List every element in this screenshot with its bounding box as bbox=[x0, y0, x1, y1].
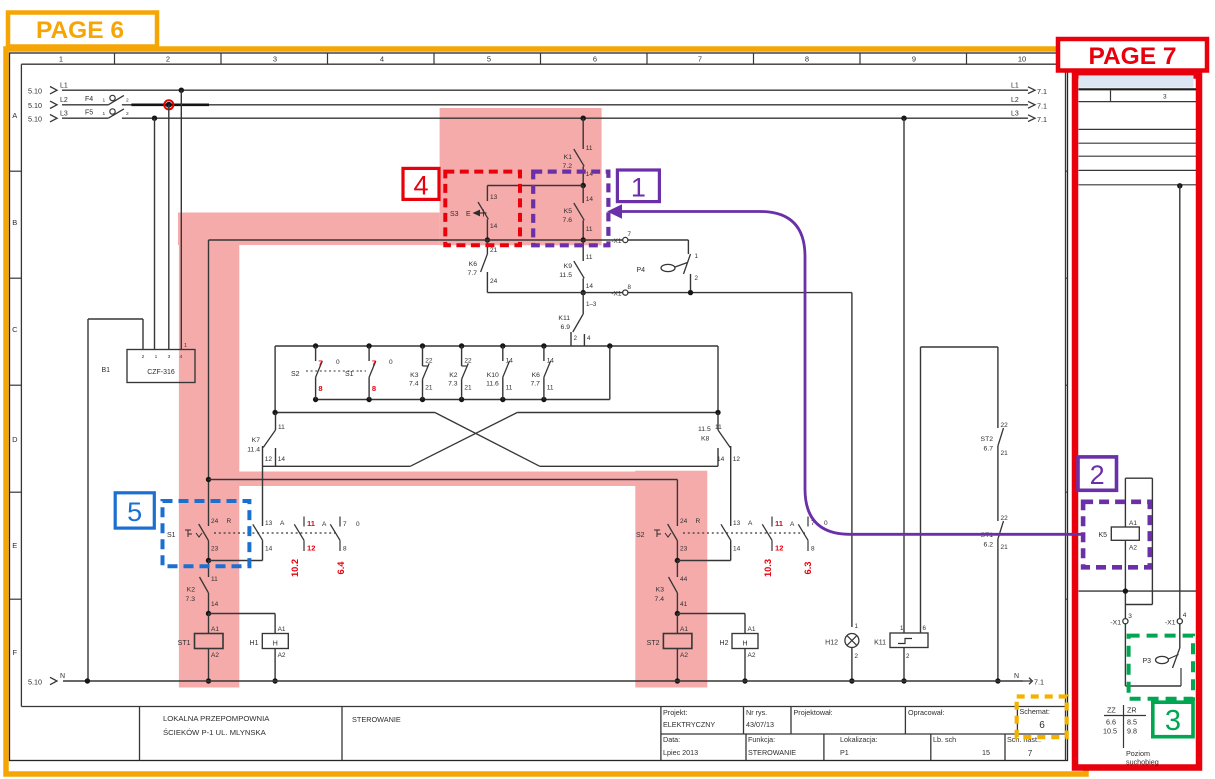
svg-text:K3: K3 bbox=[656, 587, 665, 594]
svg-text:13: 13 bbox=[265, 520, 273, 527]
svg-text:H1: H1 bbox=[250, 640, 259, 647]
svg-text:P3: P3 bbox=[1142, 658, 1151, 665]
svg-text:ST2: ST2 bbox=[647, 640, 660, 647]
svg-text:3: 3 bbox=[168, 354, 171, 360]
svg-text:2: 2 bbox=[126, 98, 129, 104]
svg-text:2: 2 bbox=[142, 354, 145, 360]
svg-text:8: 8 bbox=[811, 546, 815, 553]
svg-text:Nr rys.: Nr rys. bbox=[746, 708, 767, 717]
svg-text:21: 21 bbox=[1001, 450, 1009, 457]
svg-text:11: 11 bbox=[715, 424, 722, 431]
svg-text:K3: K3 bbox=[410, 372, 419, 379]
svg-text:Data:: Data: bbox=[663, 735, 680, 744]
svg-text:B1: B1 bbox=[101, 367, 110, 374]
svg-text:0: 0 bbox=[356, 521, 360, 528]
svg-text:F: F bbox=[13, 648, 18, 657]
svg-text:F5: F5 bbox=[85, 110, 93, 117]
svg-text:H: H bbox=[742, 641, 747, 648]
svg-text:A2: A2 bbox=[211, 652, 219, 659]
svg-text:7.6: 7.6 bbox=[563, 217, 573, 224]
svg-text:K11: K11 bbox=[874, 640, 886, 647]
svg-text:24: 24 bbox=[490, 278, 498, 285]
svg-text:21: 21 bbox=[490, 247, 498, 254]
svg-text:4: 4 bbox=[380, 55, 384, 64]
svg-text:7.7: 7.7 bbox=[468, 270, 478, 277]
svg-text:1: 1 bbox=[103, 98, 106, 104]
svg-text:N: N bbox=[60, 673, 65, 680]
svg-text:9: 9 bbox=[912, 55, 916, 64]
svg-text:A: A bbox=[790, 521, 795, 528]
svg-text:S2: S2 bbox=[291, 371, 300, 378]
svg-text:3: 3 bbox=[273, 55, 277, 64]
svg-text:1: 1 bbox=[103, 111, 106, 117]
svg-text:11: 11 bbox=[547, 385, 554, 392]
svg-text:1: 1 bbox=[59, 55, 63, 64]
svg-text:A1: A1 bbox=[278, 626, 286, 633]
svg-text:5.10: 5.10 bbox=[28, 87, 42, 96]
svg-text:K2: K2 bbox=[449, 372, 458, 379]
svg-text:R: R bbox=[227, 518, 232, 525]
svg-text:K2: K2 bbox=[187, 587, 196, 594]
svg-text:A: A bbox=[748, 520, 753, 527]
svg-text:H12: H12 bbox=[825, 640, 838, 647]
svg-text:7: 7 bbox=[1028, 749, 1032, 758]
svg-text:43/07/13: 43/07/13 bbox=[746, 720, 774, 729]
svg-text:6.3: 6.3 bbox=[803, 562, 813, 575]
svg-text:H: H bbox=[273, 641, 278, 648]
svg-text:14: 14 bbox=[265, 546, 273, 553]
svg-text:1–3: 1–3 bbox=[586, 301, 597, 308]
svg-text:K9: K9 bbox=[564, 263, 573, 270]
svg-text:21: 21 bbox=[464, 385, 472, 392]
svg-text:5: 5 bbox=[127, 497, 142, 527]
svg-text:7: 7 bbox=[628, 231, 632, 238]
svg-text:A: A bbox=[12, 111, 17, 120]
svg-text:4: 4 bbox=[1183, 612, 1187, 619]
svg-text:N: N bbox=[1014, 673, 1019, 680]
svg-text:A2: A2 bbox=[680, 652, 688, 659]
svg-text:11: 11 bbox=[211, 576, 218, 583]
svg-text:7.4: 7.4 bbox=[655, 596, 665, 603]
svg-text:3: 3 bbox=[1165, 705, 1181, 737]
svg-text:7.2: 7.2 bbox=[563, 163, 573, 170]
svg-text:11.5: 11.5 bbox=[698, 426, 711, 433]
svg-text:11.6: 11.6 bbox=[486, 381, 499, 388]
svg-text:5.10: 5.10 bbox=[28, 115, 42, 124]
svg-text:11: 11 bbox=[506, 385, 513, 392]
svg-text:1: 1 bbox=[155, 354, 158, 360]
svg-text:S3: S3 bbox=[450, 211, 459, 218]
svg-text:1: 1 bbox=[184, 343, 187, 349]
svg-text:CZF-316: CZF-316 bbox=[147, 369, 175, 376]
svg-text:S2: S2 bbox=[636, 532, 645, 539]
svg-text:A1: A1 bbox=[748, 626, 756, 633]
svg-text:21: 21 bbox=[1001, 544, 1009, 551]
svg-text:10: 10 bbox=[1018, 55, 1026, 64]
svg-text:A2: A2 bbox=[1129, 545, 1137, 552]
svg-text:14: 14 bbox=[211, 601, 219, 608]
svg-text:P4: P4 bbox=[636, 267, 645, 274]
svg-text:A2: A2 bbox=[278, 652, 286, 659]
svg-text:5.10: 5.10 bbox=[28, 101, 42, 110]
svg-text:10.3: 10.3 bbox=[763, 559, 773, 577]
svg-text:Projekt:: Projekt: bbox=[663, 708, 687, 717]
svg-text:14: 14 bbox=[490, 223, 498, 230]
svg-text:6: 6 bbox=[1039, 720, 1045, 731]
svg-text:14: 14 bbox=[547, 358, 555, 365]
svg-text:7.1: 7.1 bbox=[1037, 102, 1047, 111]
svg-text:7: 7 bbox=[698, 55, 702, 64]
svg-text:2: 2 bbox=[1090, 460, 1105, 490]
svg-text:6: 6 bbox=[923, 625, 927, 632]
svg-text:Lpiec 2013: Lpiec 2013 bbox=[663, 748, 698, 757]
svg-text:14: 14 bbox=[586, 196, 594, 203]
svg-text:7.7: 7.7 bbox=[530, 381, 540, 388]
svg-text:S1: S1 bbox=[345, 371, 354, 378]
svg-text:6.4: 6.4 bbox=[336, 561, 346, 575]
svg-text:Lokalizacja:: Lokalizacja: bbox=[840, 735, 878, 744]
svg-text:-X1: -X1 bbox=[1110, 620, 1121, 627]
svg-text:Funkcja:: Funkcja: bbox=[748, 735, 775, 744]
svg-text:6.7: 6.7 bbox=[984, 446, 994, 453]
svg-text:14: 14 bbox=[717, 456, 725, 463]
svg-text:L3: L3 bbox=[1011, 111, 1019, 118]
svg-text:E: E bbox=[12, 541, 17, 550]
svg-text:STEROWANIE: STEROWANIE bbox=[352, 715, 401, 724]
svg-text:7: 7 bbox=[343, 521, 347, 528]
svg-text:1: 1 bbox=[631, 173, 646, 203]
svg-text:8: 8 bbox=[343, 546, 347, 553]
svg-text:Opracował:: Opracował: bbox=[908, 708, 944, 717]
svg-text:23: 23 bbox=[211, 546, 219, 553]
svg-text:1: 1 bbox=[855, 623, 859, 630]
svg-text:2: 2 bbox=[695, 275, 699, 282]
svg-text:ST1: ST1 bbox=[178, 640, 191, 647]
svg-text:B: B bbox=[12, 218, 17, 227]
svg-text:P1: P1 bbox=[840, 748, 849, 757]
svg-text:23: 23 bbox=[680, 546, 688, 553]
svg-text:24: 24 bbox=[680, 518, 688, 525]
svg-text:Projektował:: Projektował: bbox=[794, 708, 833, 717]
svg-text:14: 14 bbox=[586, 283, 594, 290]
svg-text:2: 2 bbox=[855, 653, 859, 660]
svg-text:7.3: 7.3 bbox=[448, 381, 458, 388]
svg-text:2: 2 bbox=[126, 111, 129, 117]
svg-text:K6: K6 bbox=[532, 372, 541, 379]
svg-text:11: 11 bbox=[307, 519, 316, 528]
svg-text:12: 12 bbox=[265, 456, 273, 463]
svg-text:6.2: 6.2 bbox=[984, 542, 994, 549]
svg-text:ELEKTRYCZNY: ELEKTRYCZNY bbox=[663, 720, 715, 729]
svg-text:5.10: 5.10 bbox=[28, 678, 42, 687]
svg-text:14: 14 bbox=[733, 546, 741, 553]
svg-text:A1: A1 bbox=[1129, 520, 1137, 527]
svg-text:8: 8 bbox=[372, 384, 376, 393]
svg-text:2: 2 bbox=[906, 653, 910, 660]
svg-text:A2: A2 bbox=[748, 652, 756, 659]
svg-text:11: 11 bbox=[586, 226, 593, 233]
svg-text:PAGE 6: PAGE 6 bbox=[36, 17, 124, 44]
svg-text:L2: L2 bbox=[60, 97, 68, 104]
svg-text:5: 5 bbox=[487, 55, 491, 64]
svg-text:R: R bbox=[696, 518, 701, 525]
svg-text:12: 12 bbox=[733, 456, 741, 463]
svg-text:7.4: 7.4 bbox=[409, 381, 419, 388]
svg-text:13: 13 bbox=[733, 520, 741, 527]
svg-text:L3: L3 bbox=[60, 111, 68, 118]
svg-text:6.9: 6.9 bbox=[561, 324, 571, 331]
svg-text:1: 1 bbox=[695, 253, 699, 260]
svg-text:24: 24 bbox=[211, 518, 219, 525]
svg-text:K7: K7 bbox=[252, 437, 261, 444]
svg-text:A: A bbox=[280, 520, 285, 527]
svg-text:21: 21 bbox=[425, 385, 433, 392]
svg-text:L1: L1 bbox=[1011, 83, 1019, 90]
svg-text:0: 0 bbox=[389, 359, 393, 366]
svg-text:Lb. sch: Lb. sch bbox=[933, 735, 956, 744]
svg-text:11: 11 bbox=[775, 519, 784, 528]
svg-text:L1: L1 bbox=[60, 83, 68, 90]
svg-text:ST2: ST2 bbox=[981, 436, 994, 443]
svg-text:22: 22 bbox=[1001, 422, 1009, 429]
svg-text:7.1: 7.1 bbox=[1034, 678, 1044, 687]
svg-text:3: 3 bbox=[1128, 613, 1132, 620]
svg-text:7.1: 7.1 bbox=[1037, 115, 1047, 124]
svg-text:9.8: 9.8 bbox=[1127, 727, 1137, 736]
svg-text:A1: A1 bbox=[680, 626, 688, 633]
svg-text:LOKALNA PRZEPOMPOWNIA: LOKALNA PRZEPOMPOWNIA bbox=[163, 714, 270, 723]
svg-text:0: 0 bbox=[336, 359, 340, 366]
svg-text:-X1: -X1 bbox=[1165, 620, 1176, 627]
svg-text:3: 3 bbox=[1163, 93, 1167, 100]
svg-text:F4: F4 bbox=[85, 96, 93, 103]
svg-text:K6: K6 bbox=[469, 261, 478, 268]
svg-text:-X1: -X1 bbox=[611, 238, 622, 245]
svg-text:22: 22 bbox=[425, 358, 433, 365]
svg-text:ZR: ZR bbox=[1127, 706, 1137, 715]
svg-text:ŚCIEKÓW P-1 UL. MLYNSKA: ŚCIEKÓW P-1 UL. MLYNSKA bbox=[163, 728, 267, 737]
svg-text:15: 15 bbox=[982, 748, 990, 757]
svg-text:8: 8 bbox=[805, 55, 809, 64]
svg-text:2: 2 bbox=[166, 55, 170, 64]
svg-text:S1: S1 bbox=[167, 532, 176, 539]
svg-text:14: 14 bbox=[506, 358, 514, 365]
svg-text:K5: K5 bbox=[1098, 532, 1107, 539]
svg-text:7.1: 7.1 bbox=[1037, 87, 1047, 96]
svg-text:-X1: -X1 bbox=[611, 291, 622, 298]
svg-text:12: 12 bbox=[775, 544, 783, 553]
svg-text:44: 44 bbox=[680, 576, 688, 583]
svg-text:STEROWANIE: STEROWANIE bbox=[748, 748, 796, 757]
svg-text:6.6: 6.6 bbox=[1106, 718, 1116, 727]
svg-text:A: A bbox=[322, 521, 327, 528]
svg-text:H2: H2 bbox=[720, 640, 729, 647]
svg-text:K11: K11 bbox=[558, 315, 570, 322]
svg-text:7.3: 7.3 bbox=[186, 596, 196, 603]
svg-text:L2: L2 bbox=[1011, 97, 1019, 104]
svg-text:22: 22 bbox=[1001, 515, 1009, 522]
svg-text:11.4: 11.4 bbox=[247, 447, 260, 454]
svg-text:8.5: 8.5 bbox=[1127, 718, 1137, 727]
svg-text:C: C bbox=[12, 325, 18, 334]
svg-text:10.5: 10.5 bbox=[1103, 727, 1117, 736]
svg-text:suchobieg: suchobieg bbox=[1126, 758, 1159, 767]
svg-text:6: 6 bbox=[593, 55, 597, 64]
svg-text:K1: K1 bbox=[564, 154, 573, 161]
svg-text:4: 4 bbox=[180, 354, 183, 360]
svg-text:4: 4 bbox=[413, 171, 428, 201]
svg-text:10.2: 10.2 bbox=[290, 559, 300, 577]
svg-text:Schemat:: Schemat: bbox=[1020, 707, 1050, 716]
svg-text:8: 8 bbox=[628, 284, 632, 291]
svg-text:14: 14 bbox=[278, 456, 286, 463]
svg-text:7: 7 bbox=[318, 359, 322, 368]
svg-text:0: 0 bbox=[824, 520, 828, 527]
svg-text:PAGE 7: PAGE 7 bbox=[1088, 43, 1176, 70]
svg-text:12: 12 bbox=[307, 544, 315, 553]
svg-text:11: 11 bbox=[586, 145, 593, 152]
svg-text:13: 13 bbox=[490, 194, 498, 201]
svg-text:K8: K8 bbox=[701, 436, 710, 443]
svg-text:1: 1 bbox=[900, 625, 904, 632]
svg-text:11.5: 11.5 bbox=[559, 272, 572, 279]
svg-text:ZZ: ZZ bbox=[1107, 706, 1116, 715]
svg-text:4: 4 bbox=[587, 335, 591, 342]
svg-text:E: E bbox=[466, 211, 471, 218]
svg-text:7: 7 bbox=[372, 359, 376, 368]
svg-text:A1: A1 bbox=[211, 626, 219, 633]
svg-text:8: 8 bbox=[318, 384, 322, 393]
svg-text:41: 41 bbox=[680, 601, 688, 608]
svg-text:K10: K10 bbox=[487, 372, 499, 379]
svg-text:22: 22 bbox=[464, 358, 472, 365]
svg-text:D: D bbox=[12, 435, 18, 444]
svg-text:11: 11 bbox=[278, 424, 285, 431]
svg-text:2: 2 bbox=[574, 335, 578, 342]
svg-text:K5: K5 bbox=[564, 208, 573, 215]
svg-text:11: 11 bbox=[586, 254, 593, 261]
